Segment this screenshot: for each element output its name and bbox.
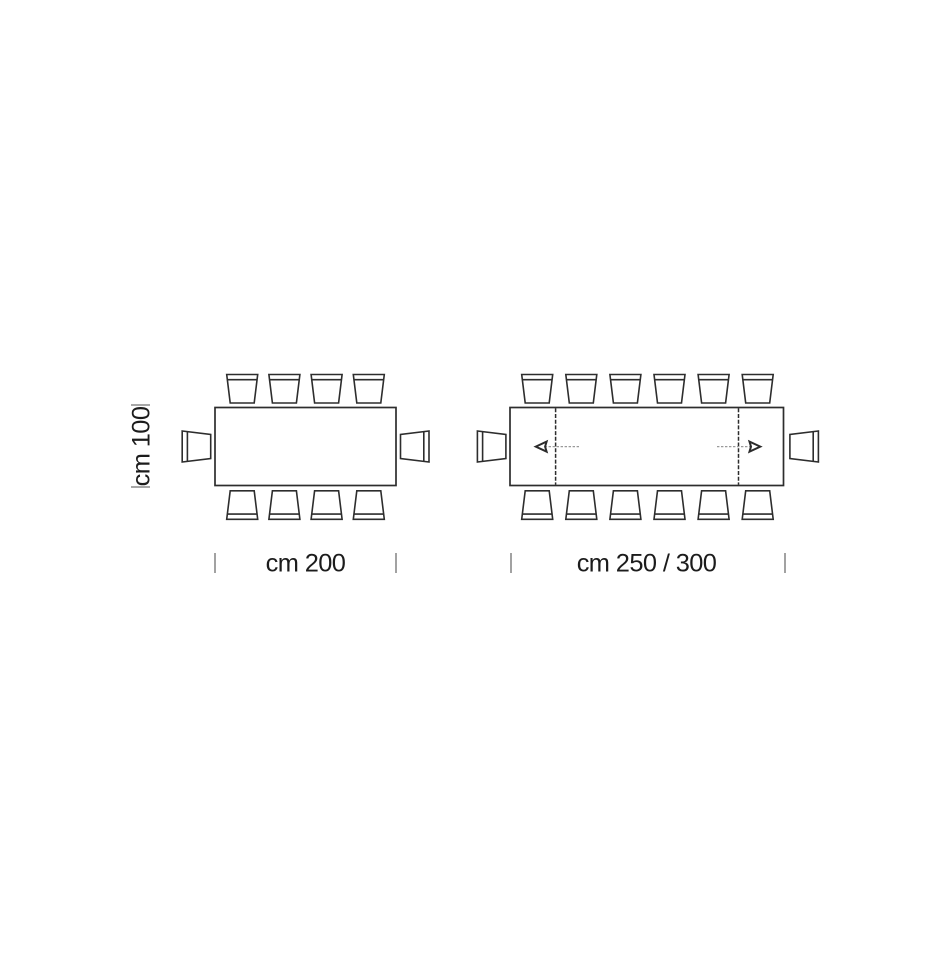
svg-text:cm 100: cm 100 <box>128 406 156 486</box>
svg-text:cm 200: cm 200 <box>266 550 346 578</box>
svg-text:cm 250 / 300: cm 250 / 300 <box>577 550 717 578</box>
